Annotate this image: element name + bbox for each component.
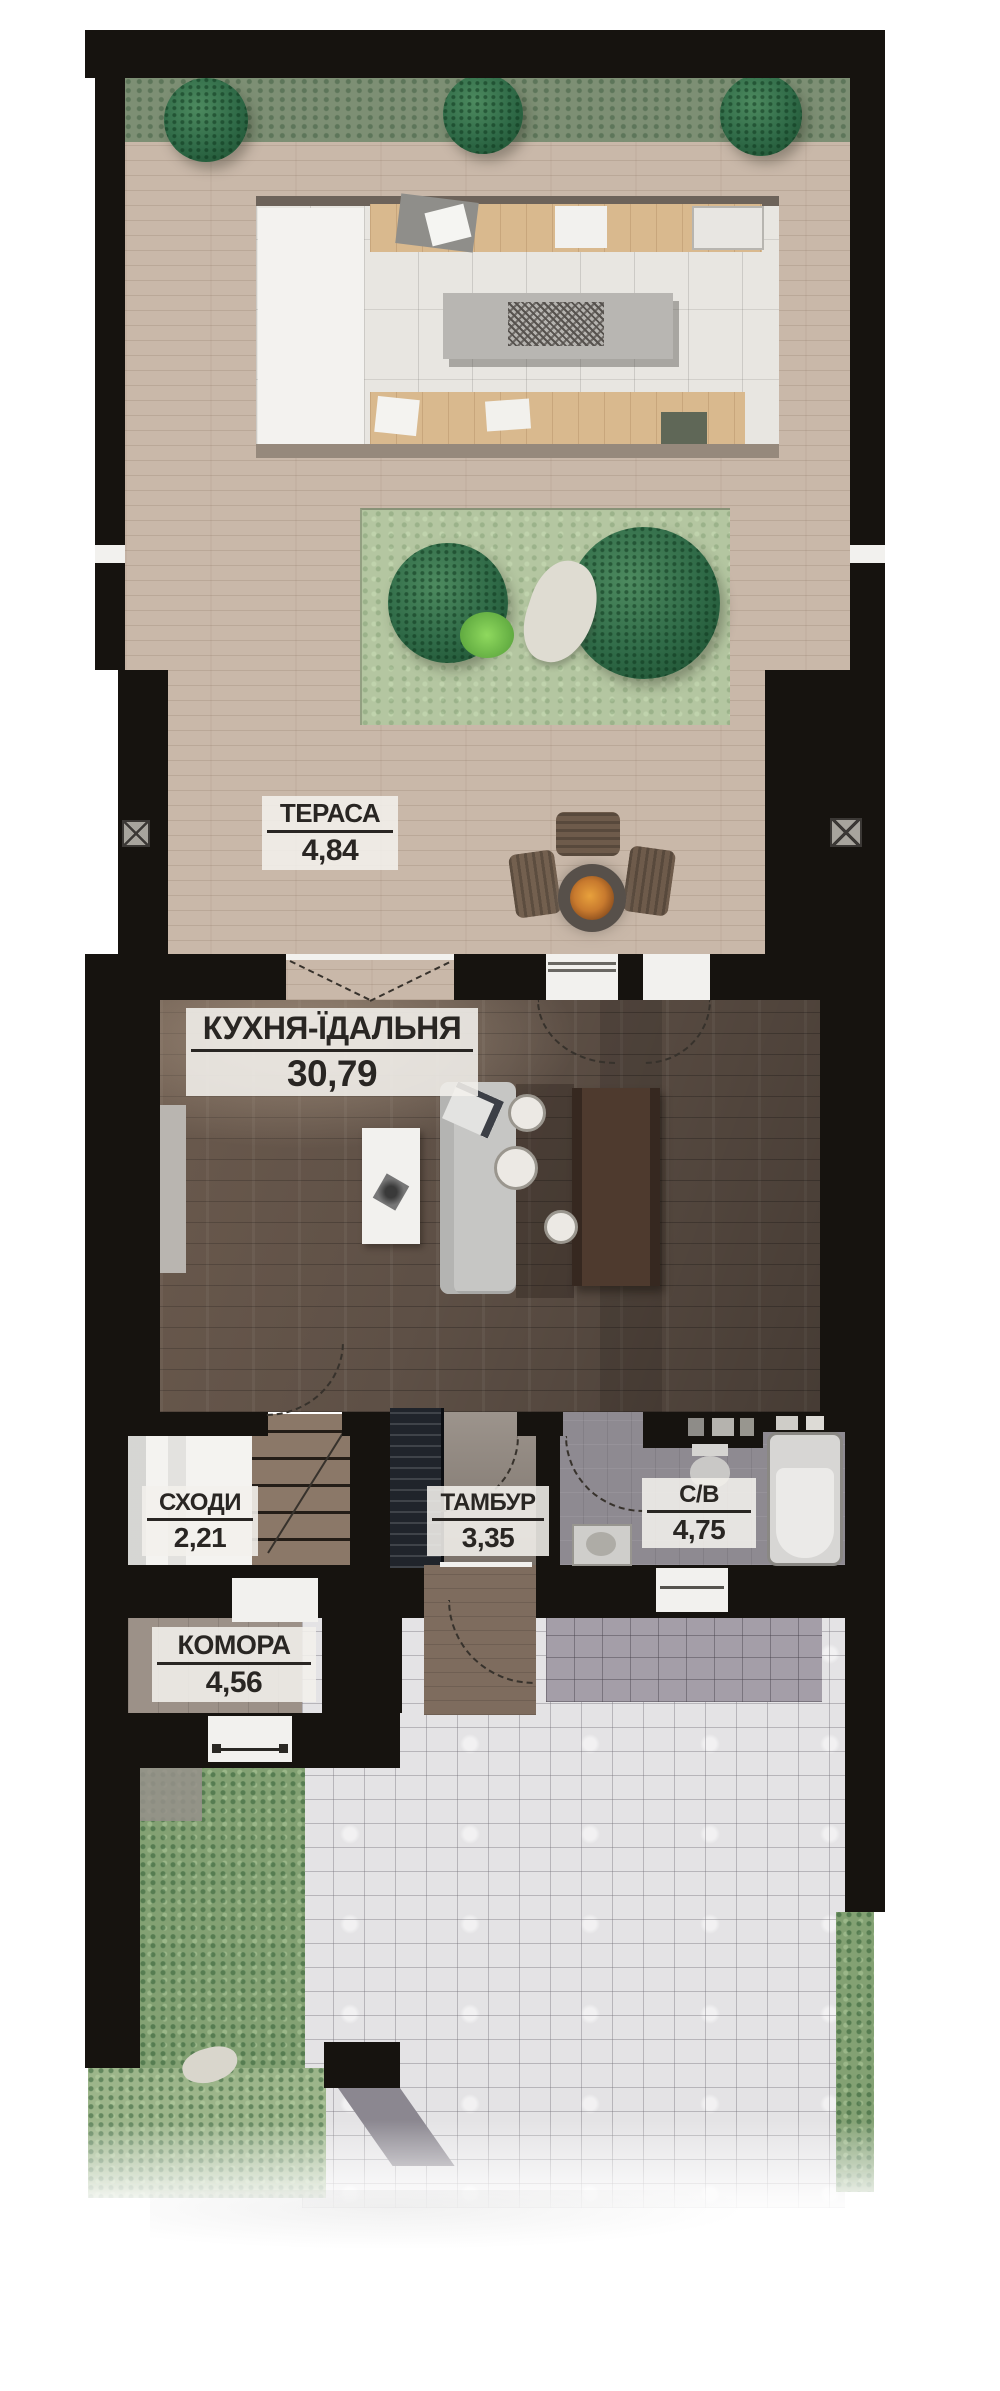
tree-icon <box>720 74 802 156</box>
left-wall-upper <box>95 78 125 670</box>
tree-icon <box>443 74 523 154</box>
room-area: 30,79 <box>287 1055 377 1092</box>
interior-wall-segment <box>85 1412 268 1436</box>
room-area: 4,56 <box>206 1668 262 1698</box>
counter-item-pad <box>555 206 607 248</box>
counter-item-grill <box>661 412 707 444</box>
top-wall <box>85 30 885 78</box>
room-divider <box>267 830 393 833</box>
room-area: 2,21 <box>174 1524 227 1552</box>
window-frame-tick <box>279 1744 288 1753</box>
room-name: СХОДИ <box>159 1490 241 1515</box>
yard-grass-bottom-left <box>88 2068 326 2198</box>
window-frame-tick <box>212 1744 221 1753</box>
room-divider <box>647 1510 751 1513</box>
yard-pavers-dark <box>546 1618 822 1702</box>
storage-side-wall <box>322 1618 402 1713</box>
left-wall-niche <box>160 1105 186 1273</box>
room-label-storage: КОМОРА 4,56 <box>152 1627 316 1702</box>
yard-wall-stub <box>324 2042 400 2088</box>
folding-door-threshold <box>286 954 454 960</box>
dining-chair <box>508 1094 546 1132</box>
tree-icon <box>164 78 248 162</box>
room-area: 3,35 <box>462 1524 515 1552</box>
room-label-kitchen-dining: КУХНЯ-ЇДАЛЬНЯ 30,79 <box>186 1008 478 1096</box>
room-divider <box>147 1518 253 1521</box>
room-area: 4,84 <box>302 836 358 866</box>
dining-chair <box>494 1146 538 1190</box>
right-wall-kitchen <box>820 954 885 1412</box>
door-frame-line <box>548 962 616 965</box>
pergola-frame-bottom <box>256 444 779 458</box>
toilet-icon <box>692 1444 728 1456</box>
room-label-terrace: ТЕРАСА 4,84 <box>262 796 398 870</box>
yard-grass-right <box>836 1912 874 2192</box>
room-name: ТЕРАСА <box>280 800 380 827</box>
lounge-chair <box>508 849 562 919</box>
room-name: ТАМБУР <box>440 1490 535 1515</box>
terrace-door <box>643 954 710 1000</box>
floor-plan: ТЕРАСА 4,84 КУХНЯ-ЇДАЛЬНЯ 30,79 СХОДИ 2,… <box>0 0 1000 2391</box>
dining-table <box>572 1088 660 1286</box>
cabinet-mark <box>806 1416 824 1430</box>
dining-chair <box>544 1210 578 1244</box>
stairs-vestibule-wall <box>350 1412 390 1565</box>
bathroom-window <box>656 1568 728 1612</box>
bright-plant <box>460 612 514 658</box>
entrance-threshold <box>440 1562 532 1567</box>
window-frame-line <box>214 1748 286 1751</box>
storage-door <box>232 1578 318 1622</box>
right-wall-upper <box>850 78 885 673</box>
fire-pit-flame <box>570 876 614 920</box>
section-marker-icon <box>122 820 150 847</box>
door-frame-line <box>548 969 616 972</box>
cabinet-mark <box>712 1418 734 1436</box>
left-wall-bottom <box>85 1768 140 2068</box>
room-area: 4,75 <box>673 1516 726 1544</box>
sink-basin <box>586 1532 616 1556</box>
terrace-kitchen-wall <box>95 954 850 1000</box>
room-name: КУХНЯ-ЇДАЛЬНЯ <box>203 1012 462 1046</box>
room-divider <box>191 1049 473 1052</box>
lounge-chair <box>556 812 620 856</box>
right-wall-block <box>765 670 885 955</box>
terrace-door <box>546 954 618 1000</box>
wall-notch <box>95 545 125 563</box>
folding-door-opening <box>286 954 454 1000</box>
counter-item-pad <box>485 399 531 432</box>
room-label-stairs: СХОДИ 2,21 <box>142 1486 258 1556</box>
cabinet-mark <box>776 1416 798 1430</box>
island-decor <box>508 302 604 346</box>
lounge-chair <box>622 845 677 917</box>
cabinet-mark <box>688 1418 704 1436</box>
grass-gray-patch <box>140 1763 202 1821</box>
counter-item-sink <box>692 206 764 250</box>
window-frame-line <box>660 1586 724 1589</box>
cabinet-mark <box>740 1418 754 1436</box>
room-name: КОМОРА <box>177 1631 290 1659</box>
bathtub-basin <box>776 1468 834 1558</box>
pergola-left-panel <box>258 208 364 448</box>
wall-notch <box>850 545 885 563</box>
right-wall-lower <box>845 1412 885 1912</box>
room-divider <box>157 1662 311 1665</box>
room-name: С/В <box>679 1482 719 1507</box>
room-label-bathroom: С/В 4,75 <box>642 1478 756 1548</box>
counter-item-pad <box>374 396 420 436</box>
left-wall-block <box>118 670 168 955</box>
stairs-steps <box>252 1414 350 1565</box>
storage-window <box>208 1716 292 1762</box>
interior-wall-segment <box>517 1412 563 1436</box>
room-label-vestibule: ТАМБУР 3,35 <box>427 1486 549 1556</box>
section-marker-icon <box>830 818 862 847</box>
room-divider <box>432 1518 544 1521</box>
left-wall-kitchen <box>85 954 160 1412</box>
